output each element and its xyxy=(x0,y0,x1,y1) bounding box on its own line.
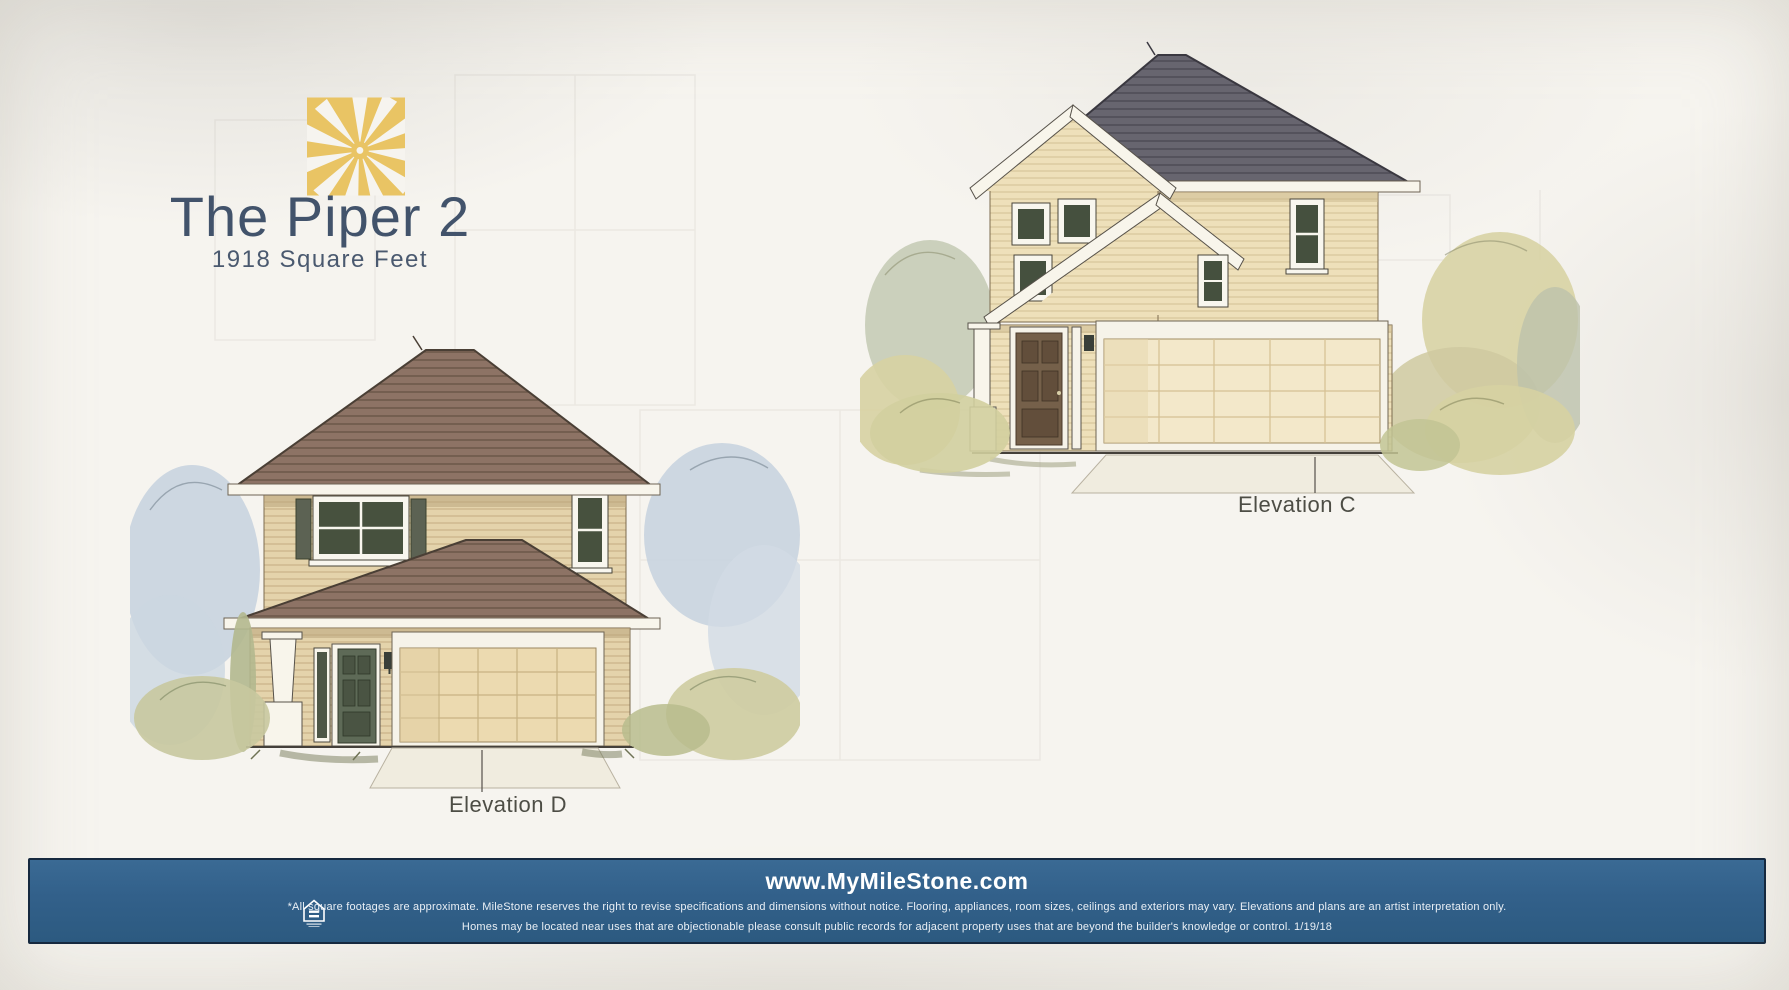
upper-window-right xyxy=(568,492,612,573)
garage-door xyxy=(1096,321,1388,451)
elevation-c-illustration xyxy=(860,25,1580,495)
ground-and-driveway xyxy=(920,453,1414,493)
elevation-d-label: Elevation D xyxy=(388,792,628,818)
flyer-page: The Piper 2 1918 Square Feet xyxy=(0,0,1789,990)
upper-window-right xyxy=(1286,199,1328,274)
upper-window-left xyxy=(296,496,426,566)
plan-square-feet: 1918 Square Feet xyxy=(100,246,540,274)
window-above-garage xyxy=(1198,255,1228,307)
porch-light xyxy=(1084,335,1094,351)
milestone-sunburst-logo xyxy=(307,97,405,196)
footer-bar: www.MyMileStone.com *All square footages… xyxy=(28,858,1766,944)
elevation-d-illustration xyxy=(130,300,800,800)
footer-disclaimer-line2: Homes may be located near uses that are … xyxy=(90,921,1704,933)
elevation-c-label: Elevation C xyxy=(1177,492,1417,518)
plan-title: The Piper 2 xyxy=(100,184,540,249)
garage-door xyxy=(392,632,604,746)
footer-disclaimer-line1: *All square footages are approximate. Mi… xyxy=(90,901,1704,913)
footer-website: www.MyMileStone.com xyxy=(30,868,1764,895)
ground-and-driveway xyxy=(246,747,634,792)
front-door xyxy=(314,644,380,746)
main-roof xyxy=(228,336,660,495)
